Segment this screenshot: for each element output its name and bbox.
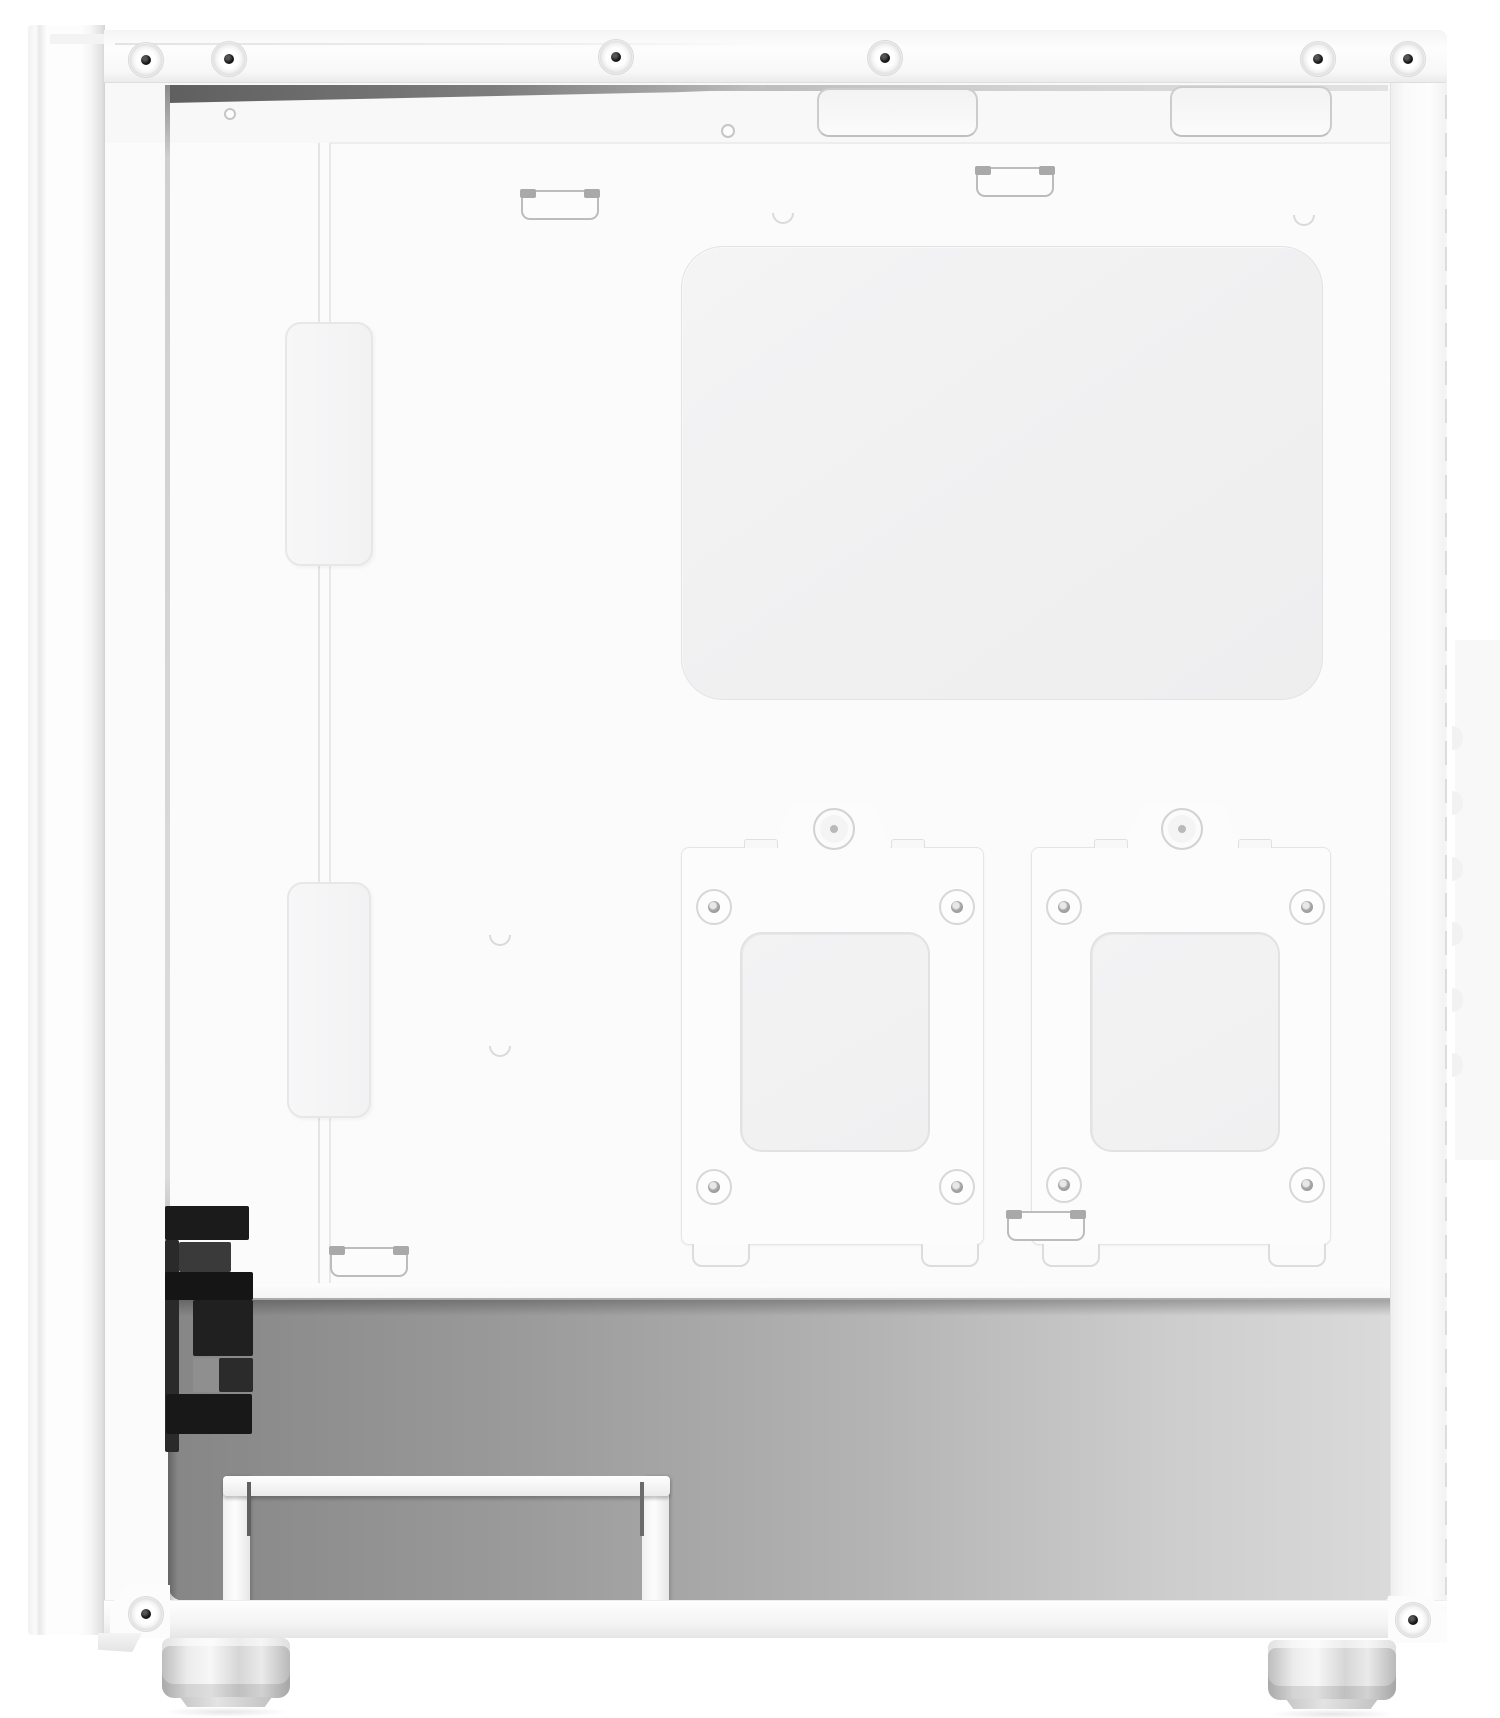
ssd-grommet	[1046, 1167, 1082, 1203]
io-block	[165, 1272, 253, 1300]
ssd-bracket-notch	[891, 839, 925, 848]
io-block	[166, 1394, 252, 1434]
cable-clip	[521, 190, 599, 220]
tray-bottom-ledge	[168, 1284, 1390, 1300]
rear-edge-vents	[1445, 95, 1447, 1595]
tray-front-edge-line	[165, 85, 170, 1297]
rivet-screw	[867, 40, 903, 76]
tray-hole	[224, 108, 236, 120]
io-block	[219, 1358, 253, 1392]
ssd-grommet	[1289, 1167, 1325, 1203]
channel-cover	[287, 882, 371, 1118]
ssd-bracket-notch	[1094, 839, 1128, 848]
ssd-bracket-foot	[921, 1244, 979, 1267]
case-foot	[162, 1638, 290, 1698]
io-block	[193, 1358, 219, 1392]
ssd-grommet	[939, 1169, 975, 1205]
rivet-screw	[598, 39, 634, 75]
case-photo: White mid-tower PC case photographed fro…	[0, 0, 1500, 1718]
case-foot	[1268, 1640, 1396, 1700]
io-block	[179, 1242, 231, 1272]
ssd-bracket-foot	[692, 1244, 750, 1267]
ssd-bracket-foot	[1268, 1244, 1326, 1267]
psu-chamber-top-shadow	[168, 1300, 1390, 1316]
io-block	[193, 1300, 253, 1356]
rail-slot	[247, 1482, 251, 1536]
front-panel-edge	[28, 25, 105, 1635]
rear-frame-column	[1390, 83, 1447, 1601]
top-frame-rail	[104, 30, 1447, 83]
ssd-thumbscrew	[1161, 808, 1203, 850]
bottom-frame-rail	[104, 1600, 1447, 1638]
io-block	[165, 1206, 249, 1240]
ssd-bracket-window	[1090, 932, 1280, 1152]
channel-cover	[285, 322, 373, 566]
front-panel-top-lip	[50, 34, 105, 44]
rivet-screw	[211, 41, 247, 77]
cable-clip	[976, 167, 1054, 197]
top-frame-seam	[115, 43, 755, 45]
cable-clip	[1007, 1211, 1085, 1241]
cable-clip	[330, 1247, 408, 1277]
cpu-cutout-cover-plate	[681, 246, 1323, 700]
ssd-bracket-notch	[744, 839, 778, 848]
ssd-thumbscrew	[813, 808, 855, 850]
ssd-grommet	[696, 889, 732, 925]
rivet-screw	[128, 42, 164, 78]
ssd-grommet	[1046, 889, 1082, 925]
ssd-grommet	[696, 1169, 732, 1205]
rivet-screw	[1390, 41, 1426, 77]
ssd-bracket-notch	[1238, 839, 1272, 848]
rivet-screw	[1395, 1602, 1431, 1638]
ssd-bracket-window	[740, 932, 930, 1152]
ssd-bracket-foot	[1042, 1244, 1100, 1267]
tray-surface-edge	[330, 142, 1390, 144]
rail-slot	[640, 1482, 644, 1536]
front-panel-bottom-wedge	[98, 1633, 142, 1652]
top-cable-cutout	[817, 88, 978, 137]
ssd-grommet	[939, 889, 975, 925]
top-cable-cutout	[1170, 86, 1332, 137]
rivet-screw	[1300, 41, 1336, 77]
tray-hole	[721, 124, 735, 138]
drive-rail-bar	[223, 1476, 670, 1496]
rivet-screw	[128, 1596, 164, 1632]
margin-shade	[1455, 640, 1500, 1160]
psu-chamber	[168, 1300, 1390, 1601]
ssd-grommet	[1289, 889, 1325, 925]
